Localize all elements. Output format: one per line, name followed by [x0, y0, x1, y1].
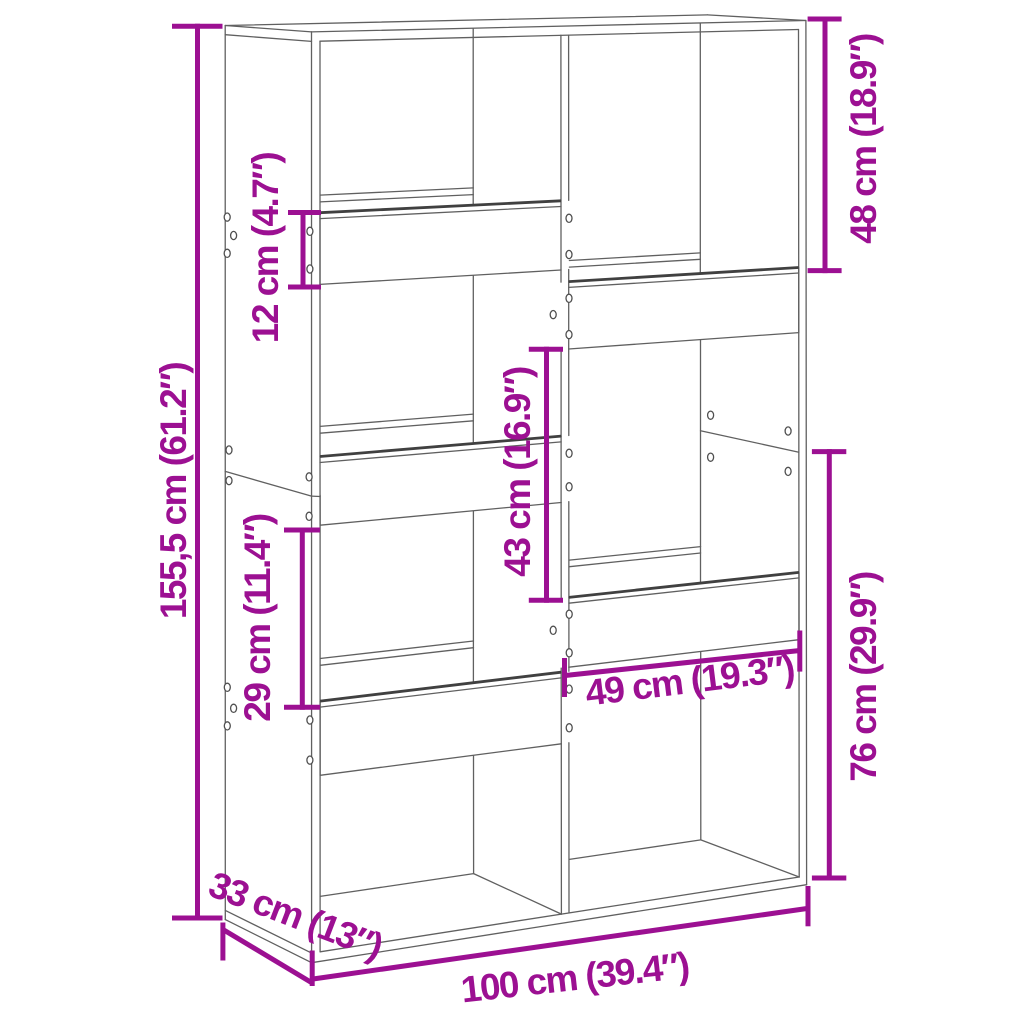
svg-text:48 cm (18.9″): 48 cm (18.9″) — [843, 34, 884, 244]
svg-text:29 cm (11.4″): 29 cm (11.4″) — [237, 514, 278, 722]
svg-text:43 cm (16.9″): 43 cm (16.9″) — [497, 367, 538, 577]
svg-text:49 cm (19.3″): 49 cm (19.3″) — [583, 647, 796, 713]
svg-text:12 cm (4.7″): 12 cm (4.7″) — [245, 153, 286, 344]
svg-text:76 cm (29.9″): 76 cm (29.9″) — [843, 572, 884, 782]
svg-text:155,5 cm (61.2″): 155,5 cm (61.2″) — [153, 363, 194, 619]
svg-text:33 cm (13″): 33 cm (13″) — [203, 864, 388, 967]
